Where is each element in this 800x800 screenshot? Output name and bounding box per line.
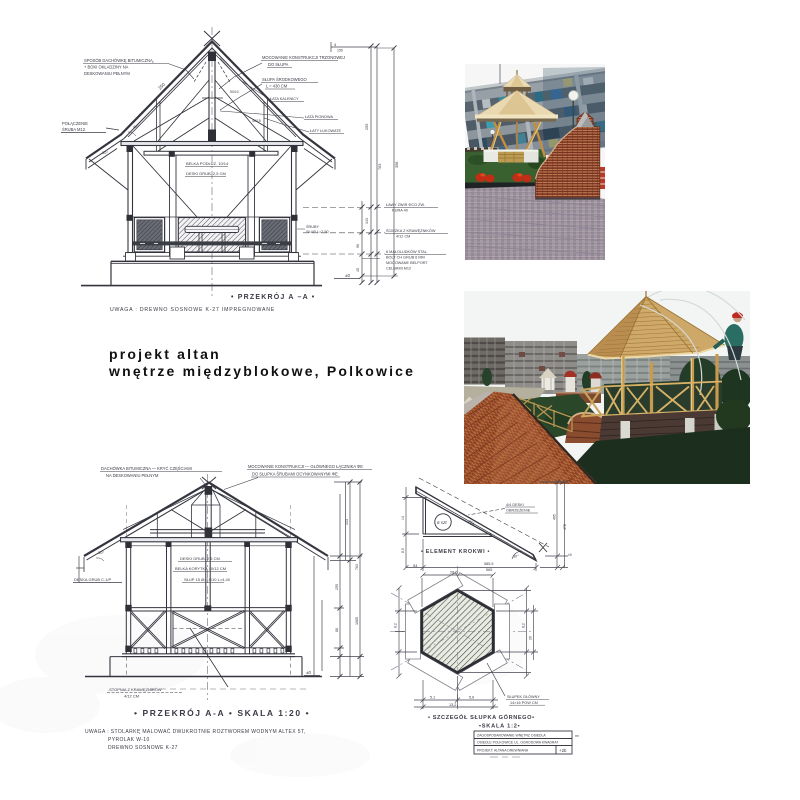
svg-text:28,6: 28,6 [450,571,457,575]
svg-text:30°: 30° [102,150,108,155]
svg-text:DREWNO SOSNOWE K-27: DREWNO SOSNOWE K-27 [108,745,178,751]
svg-text:MOCOWANIE KONSTRUKCJI — GŁÓWNE: MOCOWANIE KONSTRUKCJI — GŁÓWNEGO ŁĄCZNIK… [248,464,363,469]
svg-text:255: 255 [365,124,369,130]
svg-text:13,2: 13,2 [449,703,456,707]
svg-text:255: 255 [335,584,339,590]
svg-text:8,2: 8,2 [522,623,526,628]
svg-text:14: 14 [401,516,405,520]
svg-text:DESKA GRUB C.1/P: DESKA GRUB C.1/P [74,577,111,582]
svg-text:88: 88 [335,628,339,632]
svg-text:PROJEKT: ALTANA DREWNIANA: PROJEKT: ALTANA DREWNIANA [477,749,529,753]
svg-text:ZAGOSPODAROWANIE WNĘTRZ OSIE: ZAGOSPODAROWANIE WNĘTRZ OSIEDLA [477,734,546,738]
svg-text:NA DESKOWANIU PEŁNYM: NA DESKOWANIU PEŁNYM [106,473,159,478]
svg-text:4/4 DESKI: 4/4 DESKI [506,503,524,507]
svg-text:BOLT CH GRUB 6 MM: BOLT CH GRUB 6 MM [386,256,425,260]
svg-text:40/15: 40/15 [252,119,261,123]
svg-text:SŁUP 15 Ø=15/10 L=4,40: SŁUP 15 Ø=15/10 L=4,40 [184,577,231,582]
svg-text:MOCOWANIE KONSTRUKCJI TRZONOWE: MOCOWANIE KONSTRUKCJI TRZONOWEJ [262,55,345,60]
svg-text:30°: 30° [513,555,519,559]
svg-text:• PRZEKRÓJ A –A •: • PRZEKRÓJ A –A • [231,292,315,301]
svg-text:8,2: 8,2 [394,623,398,628]
svg-text:DESKI GRUB. 2,5 CM: DESKI GRUB. 2,5 CM [180,556,220,561]
svg-text:565: 565 [486,568,492,572]
svg-text:SPOSÓB DACHÓWKĘ BITUMICZNĄ,: SPOSÓB DACHÓWKĘ BITUMICZNĄ, [84,58,154,63]
svg-text:PYROLAK W-10: PYROLAK W-10 [108,737,150,743]
svg-text:L = 430 CM: L = 430 CM [266,84,288,89]
svg-text:26: 26 [529,636,533,640]
svg-text:DESKI GRUB. 2,5 CM: DESKI GRUB. 2,5 CM [186,171,226,176]
svg-text:DO SŁUPKA ŚRUBAMI OCYNKOWANYMI: DO SŁUPKA ŚRUBAMI OCYNKOWANYMI ΦE [252,472,338,477]
svg-text:ŚCIEŻKA Z KRAWĘŻNIKÓW: ŚCIEŻKA Z KRAWĘŻNIKÓW [386,228,436,233]
svg-text:ŚRUBA M12: ŚRUBA M12 [62,127,86,132]
svg-text:14×16 POW CM: 14×16 POW CM [510,701,538,705]
svg-text:585.5: 585.5 [484,562,494,566]
svg-text:OSIEDLE POLKOWICE UL. OGRODOWA: OSIEDLE POLKOWICE UL. OGRODOWA KWADRAT [477,741,558,745]
svg-text:ŁAWY ŻWIR ΦCO ŻW.: ŁAWY ŻWIR ΦCO ŻW. [386,202,425,207]
svg-text:45°: 45° [133,124,139,129]
svg-text:358: 358 [395,162,399,168]
svg-text:763: 763 [355,564,359,570]
svg-text:DESKOWANIU PEŁNYM: DESKOWANIU PEŁNYM [84,71,130,76]
svg-text:.STOPNIA Z KRAWĘŻNIKÓW: .STOPNIA Z KRAWĘŻNIKÓW [108,687,162,692]
svg-text:±0: ±0 [306,670,311,675]
svg-text:ŁATA KALENICY: ŁATA KALENICY [270,97,299,101]
svg-text:m²: m² [575,734,580,738]
svg-text:RURA 40: RURA 40 [392,209,408,213]
svg-text:1085: 1085 [355,617,359,625]
svg-text:ŚRUBY: ŚRUBY [306,224,320,229]
svg-text:SŁUP L=2,90: SŁUP L=2,90 [306,230,329,234]
svg-text:90: 90 [356,244,360,248]
svg-text:UWAGA : STOLARKĘ MALOWAĆ DWU: UWAGA : STOLARKĘ MALOWAĆ DWUKROTNIE ROZT… [85,728,306,735]
svg-text:143: 143 [345,519,349,525]
svg-text:5,1: 5,1 [430,696,435,700]
svg-text:143: 143 [365,218,369,224]
svg-text:DACHÓWKA BITUMICZNA — KRYĆ CZĘ: DACHÓWKA BITUMICZNA — KRYĆ CZĘŚCIAMI [101,466,192,471]
svg-text:MOCOWANE BELPORT: MOCOWANE BELPORT [386,261,428,265]
svg-text:BELKA KORYTKA 10/12 CM: BELKA KORYTKA 10/12 CM [175,566,226,571]
svg-text:6 szt: 6 szt [437,520,447,525]
svg-text:50/10: 50/10 [230,90,239,94]
svg-text:ŁATY ŁUKOWATE: ŁATY ŁUKOWATE [310,129,342,133]
svg-text:5,6: 5,6 [469,696,474,700]
svg-text:45: 45 [356,268,360,272]
svg-text:SŁUPEK GŁÓWNY: SŁUPEK GŁÓWNY [507,694,540,699]
svg-text:+ BOKI OKŁADZINY NA: + BOKI OKŁADZINY NA [84,65,129,70]
svg-text:6 MAŁOLUDKÓW STAL: 6 MAŁOLUDKÓW STAL [386,249,427,254]
svg-text:±0: ±0 [568,553,572,557]
svg-text:30°: 30° [98,550,104,555]
svg-text:• PRZEKRÓJ A-A • SKALA 1:2: • PRZEKRÓJ A-A • SKALA 1:20 • [134,707,310,718]
svg-text:DO SŁUPA: DO SŁUPA [268,62,289,67]
svg-text:150: 150 [337,49,343,53]
svg-text:SŁUPA ŚRODKOWEGO: SŁUPA ŚRODKOWEGO [262,77,307,82]
svg-text:• ELEMENT KROKWI •: • ELEMENT KROKWI • [421,549,490,555]
svg-text:BELKA PODŁUŻ. 10/14: BELKA PODŁUŻ. 10/14 [186,161,229,166]
svg-text:POŁĄCZENIE: POŁĄCZENIE [62,121,88,126]
svg-text:CELBAMI M12: CELBAMI M12 [386,267,411,271]
svg-text:•SKALA 1:2•: •SKALA 1:2• [479,724,520,730]
svg-text:4: 4 [334,42,337,47]
svg-text:UWAGA : DREWNO SOSNOWE K-27: UWAGA : DREWNO SOSNOWE K-27 IMPREGNOWANE [110,307,275,313]
svg-text:+2b: +2b [559,748,567,753]
svg-text:4/12 CM: 4/12 CM [124,694,139,699]
svg-text:54: 54 [413,563,418,568]
svg-text:8,5: 8,5 [401,548,405,553]
svg-text:465: 465 [553,514,557,520]
svg-text:763: 763 [378,164,382,170]
svg-text:±0: ±0 [345,273,350,278]
svg-text:OBRZEŻENIE: OBRZEŻENIE [506,508,531,513]
svg-text:478: 478 [563,524,567,530]
svg-text:ŁATA PIONOWA: ŁATA PIONOWA [305,115,333,119]
svg-text:4/12 CM: 4/12 CM [396,235,410,239]
svg-text:• SZCZEGÓŁ SŁUPKA GÓRNEGO•: • SZCZEGÓŁ SŁUPKA GÓRNEGO• [428,713,535,721]
